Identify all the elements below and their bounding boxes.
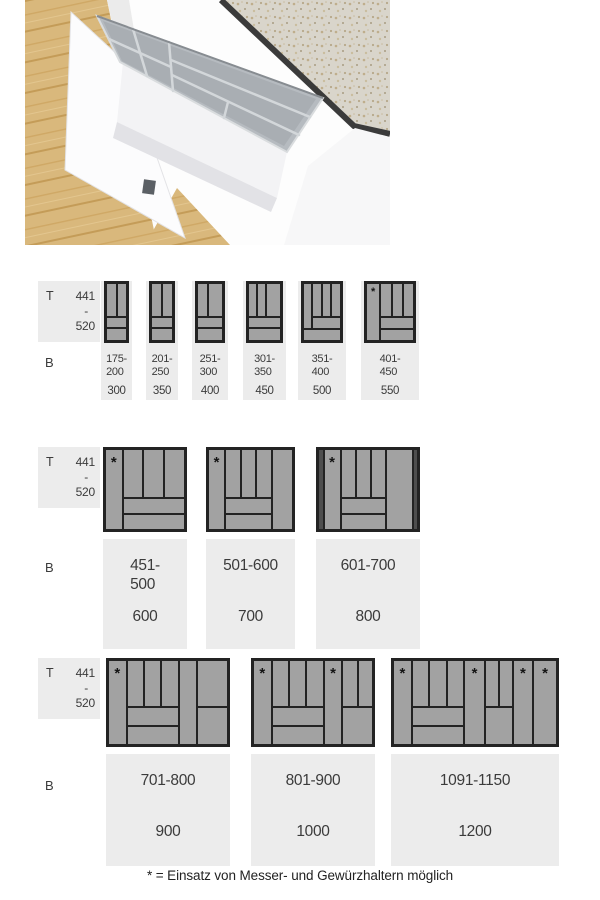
nominal-width: 550 [361, 385, 419, 397]
tray-filler-panel [413, 449, 419, 530]
tray-diagram [104, 281, 129, 343]
depth-label: T441-520 [38, 281, 100, 342]
tray-compartment [342, 660, 357, 707]
tray-diagram [149, 281, 175, 343]
width-range-text: 201-250 [152, 353, 173, 379]
width-range-text: 601-700 [341, 556, 396, 575]
tray-diagram [301, 281, 343, 343]
tray-compartment [106, 317, 127, 329]
tray-compartment [447, 660, 464, 707]
tray-compartment [272, 726, 324, 745]
tray-compartment [197, 328, 223, 341]
tray-compartment [312, 317, 341, 330]
width-range-text: 801-900 [286, 771, 341, 790]
tray-diagram [246, 281, 283, 343]
catalog-page: T441-520B175-200300201-250350251-3004003… [0, 0, 600, 900]
nominal-width: 1200 [391, 823, 559, 841]
tray-compartment [225, 514, 272, 530]
tray-compartment [197, 317, 223, 329]
nominal-width: 800 [316, 608, 420, 626]
width-range: 451-500 [103, 556, 187, 594]
tray-compartment [499, 660, 513, 707]
tray-compartment [380, 317, 414, 329]
width-range: 701-800 [106, 771, 230, 790]
brand-logo [142, 179, 156, 195]
tray-compartment [322, 283, 332, 317]
tray-compartment [485, 660, 499, 707]
tray-compartment [106, 283, 117, 317]
width-range: 601-700 [316, 556, 420, 575]
width-range-text: 301-350 [254, 353, 275, 379]
tray-compartment [272, 449, 293, 530]
nominal-width: 300 [101, 385, 132, 397]
width-range-text: 451-500 [130, 556, 160, 594]
tray-compartment [179, 660, 198, 745]
tray-diagram [195, 281, 225, 343]
tray-compartment [331, 283, 341, 317]
tray-compartment [123, 498, 185, 514]
tray-compartment: * [366, 283, 380, 341]
width-range: 501-600 [206, 556, 295, 575]
tray-compartment [485, 707, 513, 745]
width-axis-label: B [45, 560, 54, 575]
tray-compartment [341, 514, 386, 530]
depth-axis-letter: T [46, 455, 54, 508]
width-range: 201-250 [146, 353, 178, 379]
tray-compartment: * [208, 449, 225, 530]
knife-holder-star: * [472, 666, 478, 681]
tray-compartment: * [393, 660, 412, 745]
nominal-width: 450 [243, 385, 286, 397]
tray-compartment [162, 283, 173, 317]
tray-diagram: * [106, 658, 230, 747]
width-axis-label: B [45, 355, 54, 370]
nominal-width: 350 [146, 385, 178, 397]
width-axis-label: B [45, 778, 54, 793]
tray-compartment [371, 449, 386, 498]
depth-label: T441-520 [38, 658, 100, 719]
tray-compartment [197, 660, 228, 707]
tray-compartment [256, 449, 272, 498]
tray-compartment: * [105, 449, 123, 530]
tray-diagram: ** [251, 658, 375, 747]
tray-compartment [151, 317, 173, 329]
tray-compartment [289, 660, 306, 707]
width-range-text: 251-300 [200, 353, 221, 379]
nominal-width: 600 [103, 608, 187, 626]
tray-compartment [380, 329, 414, 341]
tray-diagram: * [206, 447, 295, 532]
knife-holder-star: * [330, 666, 336, 681]
knife-holder-star: * [400, 666, 406, 681]
tray-compartment [358, 660, 373, 707]
tray-diagram: * [364, 281, 416, 343]
width-range-text: 175-200 [106, 353, 127, 379]
tray-compartment [106, 328, 127, 341]
tray-compartment [306, 660, 323, 707]
width-range: 175-200 [101, 353, 132, 379]
width-range: 1091-1150 [391, 771, 559, 790]
tray-compartment [151, 328, 173, 341]
nominal-width: 500 [298, 385, 346, 397]
tray-compartment [248, 317, 281, 329]
tray-diagram: **** [391, 658, 559, 747]
tray-compartment [342, 707, 373, 745]
width-range-text: 501-600 [223, 556, 278, 575]
tray-compartment [257, 283, 266, 317]
width-range: 251-300 [192, 353, 228, 379]
tray-compartment [161, 660, 178, 707]
tray-compartment [356, 449, 371, 498]
width-range-text: 701-800 [141, 771, 196, 790]
depth-axis-letter: T [46, 289, 54, 342]
depth-range: 441-520 [76, 289, 95, 342]
tray-compartment [303, 283, 312, 329]
tray-compartment [127, 707, 179, 726]
width-range-text: 351-400 [312, 353, 333, 379]
tray-compartment [386, 449, 413, 530]
tray-compartment: * [324, 449, 341, 530]
tray-compartment [117, 283, 128, 317]
tray-compartment [403, 283, 414, 317]
width-range: 351-400 [298, 353, 346, 379]
tray-compartment [412, 660, 430, 707]
tray-compartment [208, 283, 223, 317]
tray-compartment [412, 726, 464, 745]
tray-compartment [380, 283, 391, 317]
tray-compartment [164, 449, 185, 498]
depth-range: 441-520 [76, 455, 95, 508]
tray-compartment [144, 660, 161, 707]
tray-compartment [127, 726, 179, 745]
tray-compartment [151, 283, 162, 317]
tray-compartment [272, 660, 289, 707]
knife-holder-star: * [542, 666, 548, 681]
tray-compartment: * [464, 660, 485, 745]
tray-compartment [143, 449, 164, 498]
width-range: 401-450 [361, 353, 419, 379]
nominal-width: 900 [106, 823, 230, 841]
tray-compartment [266, 283, 281, 317]
width-range: 301-350 [243, 353, 286, 379]
width-range-text: 1091-1150 [440, 771, 510, 790]
depth-range: 441-520 [76, 666, 95, 719]
knife-holder-star: * [329, 455, 335, 470]
tray-compartment [123, 514, 185, 530]
tray-compartment [272, 707, 324, 726]
width-range-text: 401-450 [380, 353, 401, 379]
knife-holder-star: * [111, 455, 117, 470]
knife-holder-star: * [259, 666, 265, 681]
tray-compartment [341, 498, 386, 514]
tray-compartment [127, 660, 144, 707]
tray-diagram: * [103, 447, 187, 532]
tray-compartment: * [253, 660, 272, 745]
nominal-width: 400 [192, 385, 228, 397]
footnote: * = Einsatz von Messer- und Gewürzhalter… [0, 868, 600, 883]
tray-compartment [312, 283, 322, 317]
tray-compartment: * [324, 660, 343, 745]
width-range: 801-900 [251, 771, 375, 790]
tray-compartment [123, 449, 144, 498]
tray-compartment: * [108, 660, 127, 745]
tray-compartment: * [533, 660, 557, 745]
product-photo [25, 0, 390, 245]
tray-compartment [225, 449, 241, 498]
tray-compartment: * [513, 660, 534, 745]
tray-diagram: * [316, 447, 420, 532]
nominal-width: 700 [206, 608, 295, 626]
depth-axis-letter: T [46, 666, 54, 719]
tray-compartment [392, 283, 403, 317]
tray-compartment [303, 329, 341, 341]
tray-compartment [248, 328, 281, 341]
tray-compartment [197, 707, 228, 745]
nominal-width: 1000 [251, 823, 375, 841]
depth-label: T441-520 [38, 447, 100, 508]
knife-holder-star: * [114, 666, 120, 681]
knife-holder-star: * [371, 287, 375, 298]
tray-compartment [341, 449, 356, 498]
knife-holder-star: * [214, 455, 220, 470]
knife-holder-star: * [520, 666, 526, 681]
tray-compartment [248, 283, 257, 317]
tray-compartment [412, 707, 464, 726]
tray-compartment [429, 660, 447, 707]
tray-compartment [225, 498, 272, 514]
tray-compartment [241, 449, 257, 498]
tray-compartment [197, 283, 208, 317]
